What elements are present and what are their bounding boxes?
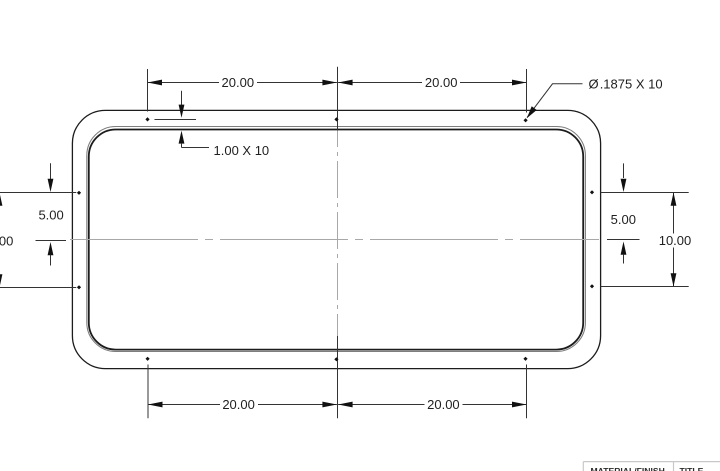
svg-text:5.00: 5.00 — [611, 212, 636, 227]
svg-text:Ø .1875 X 10: Ø .1875 X 10 — [589, 76, 663, 91]
svg-text:20.00: 20.00 — [427, 397, 460, 412]
svg-text:5.00: 5.00 — [38, 208, 63, 223]
svg-text:1.00 X 10: 1.00 X 10 — [214, 143, 270, 158]
svg-text:20.00: 20.00 — [222, 397, 255, 412]
svg-text:10.00: 10.00 — [659, 233, 692, 248]
svg-text:MATERIAL/FINISH: MATERIAL/FINISH — [591, 466, 665, 471]
svg-text:TITLE: TITLE — [680, 466, 704, 471]
svg-text:20.00: 20.00 — [222, 75, 255, 90]
svg-text:20.00: 20.00 — [425, 75, 458, 90]
svg-text:10.00: 10.00 — [0, 234, 13, 249]
